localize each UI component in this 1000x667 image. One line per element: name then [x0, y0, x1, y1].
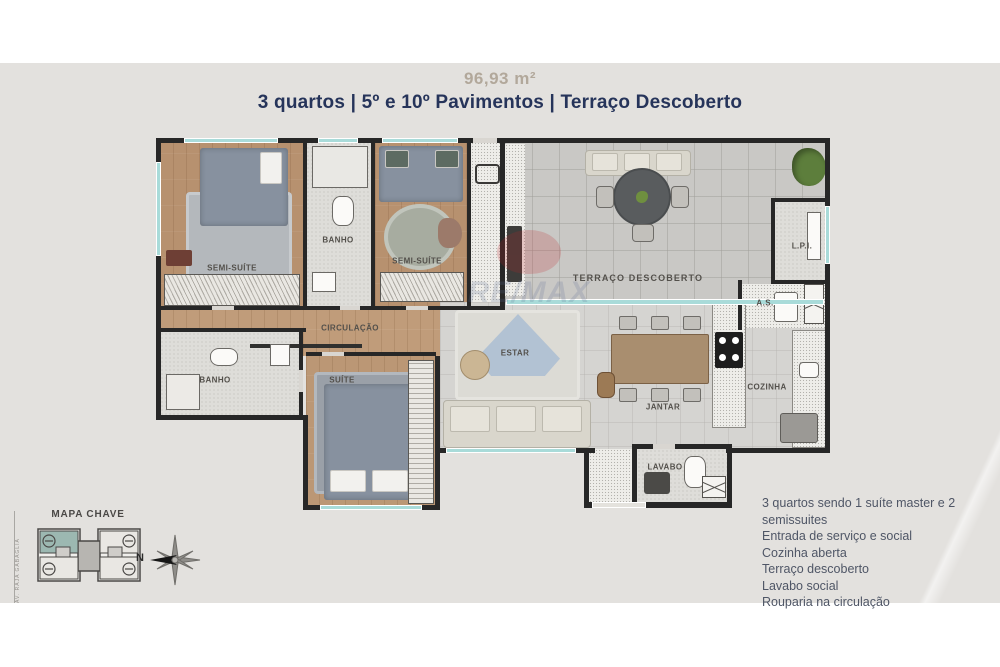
feature-item: Rouparia na circulação [762, 594, 1000, 611]
room-label-semi-suite-2: SEMI-SUÍTE [392, 257, 442, 266]
lpi-shaft [807, 212, 821, 260]
room-label-semi-suite-1: SEMI-SUÍTE [207, 264, 257, 273]
door-gap [653, 444, 675, 449]
window-marker [446, 448, 576, 453]
bench-cushion [656, 153, 682, 171]
window-marker [506, 299, 824, 305]
terrace-chair [632, 224, 654, 242]
feature-item: Cozinha aberta [762, 545, 1000, 562]
dining-chair [619, 316, 637, 330]
pillow [385, 150, 409, 168]
burner [732, 354, 739, 361]
feature-item: Lavabo social [762, 578, 1000, 595]
pouf [460, 350, 490, 380]
wall-segment [500, 138, 505, 310]
burner [719, 337, 726, 344]
lavabo-sink [644, 472, 670, 494]
feature-item: Terraço descoberto [762, 561, 1000, 578]
window-marker [320, 505, 422, 510]
window-marker [382, 138, 458, 143]
wall-segment [584, 448, 589, 506]
wall-segment [303, 142, 307, 310]
door-gap [299, 370, 303, 392]
dining-chair [619, 388, 637, 402]
wall-segment [727, 444, 732, 506]
terrace-plant [792, 148, 826, 186]
service-door-marker [592, 502, 646, 508]
sink-banho-1 [312, 272, 336, 292]
window-marker [184, 138, 278, 143]
wall-segment [738, 280, 742, 330]
wall-segment [156, 415, 308, 420]
pillow [372, 470, 408, 492]
wall-segment [632, 444, 637, 506]
area-title: 96,93 m² [0, 69, 1000, 89]
door-gap [340, 306, 360, 310]
key-map [36, 523, 142, 589]
shower-banho-1 [312, 146, 368, 188]
terrace-cabinet [507, 226, 522, 282]
rouparia-shelf [250, 344, 362, 348]
room-label-circulacao: CIRCULAÇÃO [321, 324, 379, 333]
door-gap [473, 138, 497, 143]
bench-cushion [592, 153, 618, 171]
toilet-banho-2 [210, 348, 238, 366]
wall-segment [632, 444, 732, 449]
plan-subtitle: 3 quartos | 5º e 10º Pavimentos | Terraç… [0, 92, 1000, 114]
room-label-lavabo: LAVABO [648, 463, 683, 472]
door-gap [322, 352, 344, 356]
floor-plan: SEMI-SUÍTE BANHO SEMI-SUÍTE CIRCULAÇÃO B… [154, 134, 834, 512]
room-label-banho-2: BANHO [199, 376, 230, 385]
wall-segment [771, 198, 775, 284]
sofa-cushion [496, 406, 536, 432]
room-label-terraco: TERRAÇO DESCOBERTO [573, 273, 703, 283]
feature-item: Entrada de serviço e social [762, 528, 1000, 545]
wall-segment [467, 142, 471, 310]
dining-chair [683, 316, 701, 330]
terrace-chair [596, 186, 614, 208]
pillow [260, 152, 282, 184]
fridge [780, 413, 818, 443]
sofa-cushion [450, 406, 490, 432]
wall-segment [303, 415, 308, 510]
dresser [166, 250, 192, 266]
wall-segment [435, 356, 440, 510]
bench-cushion [624, 153, 650, 171]
sink-banho-2 [270, 344, 290, 366]
wardrobe-semi-suite-2 [380, 272, 464, 302]
laundry-tank [774, 292, 798, 322]
dining-chair [651, 388, 669, 402]
pillow [330, 470, 366, 492]
wall-segment [771, 280, 830, 284]
wall-segment [825, 138, 830, 453]
wall-segment [726, 448, 830, 453]
burner [719, 354, 726, 361]
toilet-banho-1 [332, 196, 354, 226]
service-corridor-floor [586, 449, 636, 503]
content-panel: 96,93 m² 3 quartos | 5º e 10º Pavimentos… [0, 63, 1000, 603]
page: 96,93 m² 3 quartos | 5º e 10º Pavimentos… [0, 0, 1000, 667]
feature-item: 3 quartos sendo 1 suíte master e 2 semis… [762, 495, 1000, 528]
room-label-lpi: L.P.I. [792, 242, 812, 251]
room-label-as: A.S. [756, 299, 773, 308]
wardrobe-suite [408, 360, 434, 504]
features-list: 3 quartos sendo 1 suíte master e 2 semis… [762, 495, 1000, 611]
street-label: AV. RAJA GABAGLIA [14, 511, 23, 603]
wall-segment [771, 198, 830, 202]
wall-segment [371, 142, 375, 310]
wall-segment [160, 328, 306, 332]
shower-banho-2 [166, 374, 200, 410]
compass-north-label: N [136, 552, 144, 564]
window-marker [156, 162, 161, 256]
room-label-suite: SUÍTE [329, 376, 355, 385]
window-marker [825, 206, 830, 264]
window-marker [318, 138, 358, 143]
room-label-estar: ESTAR [501, 349, 530, 358]
room-label-cozinha: COZINHA [747, 383, 786, 392]
dining-table [611, 334, 709, 384]
compass-icon [148, 533, 202, 587]
dining-chair [651, 316, 669, 330]
dining-chair [683, 388, 701, 402]
entry-door-icon [475, 164, 500, 184]
room-label-jantar: JANTAR [646, 403, 680, 412]
door-gap [212, 306, 234, 310]
room-label-banho-1: BANHO [322, 236, 353, 245]
burner [732, 337, 739, 344]
door-gap [406, 306, 428, 310]
armchair [438, 218, 462, 248]
side-table [597, 372, 615, 398]
lavabo-cabinet [702, 476, 726, 498]
sofa-cushion [542, 406, 582, 432]
pillow [435, 150, 459, 168]
kitchen-sink [799, 362, 819, 378]
terrace-chair [671, 186, 689, 208]
wardrobe-semi-suite-1 [164, 274, 300, 306]
key-map-title: MAPA CHAVE [38, 509, 138, 520]
